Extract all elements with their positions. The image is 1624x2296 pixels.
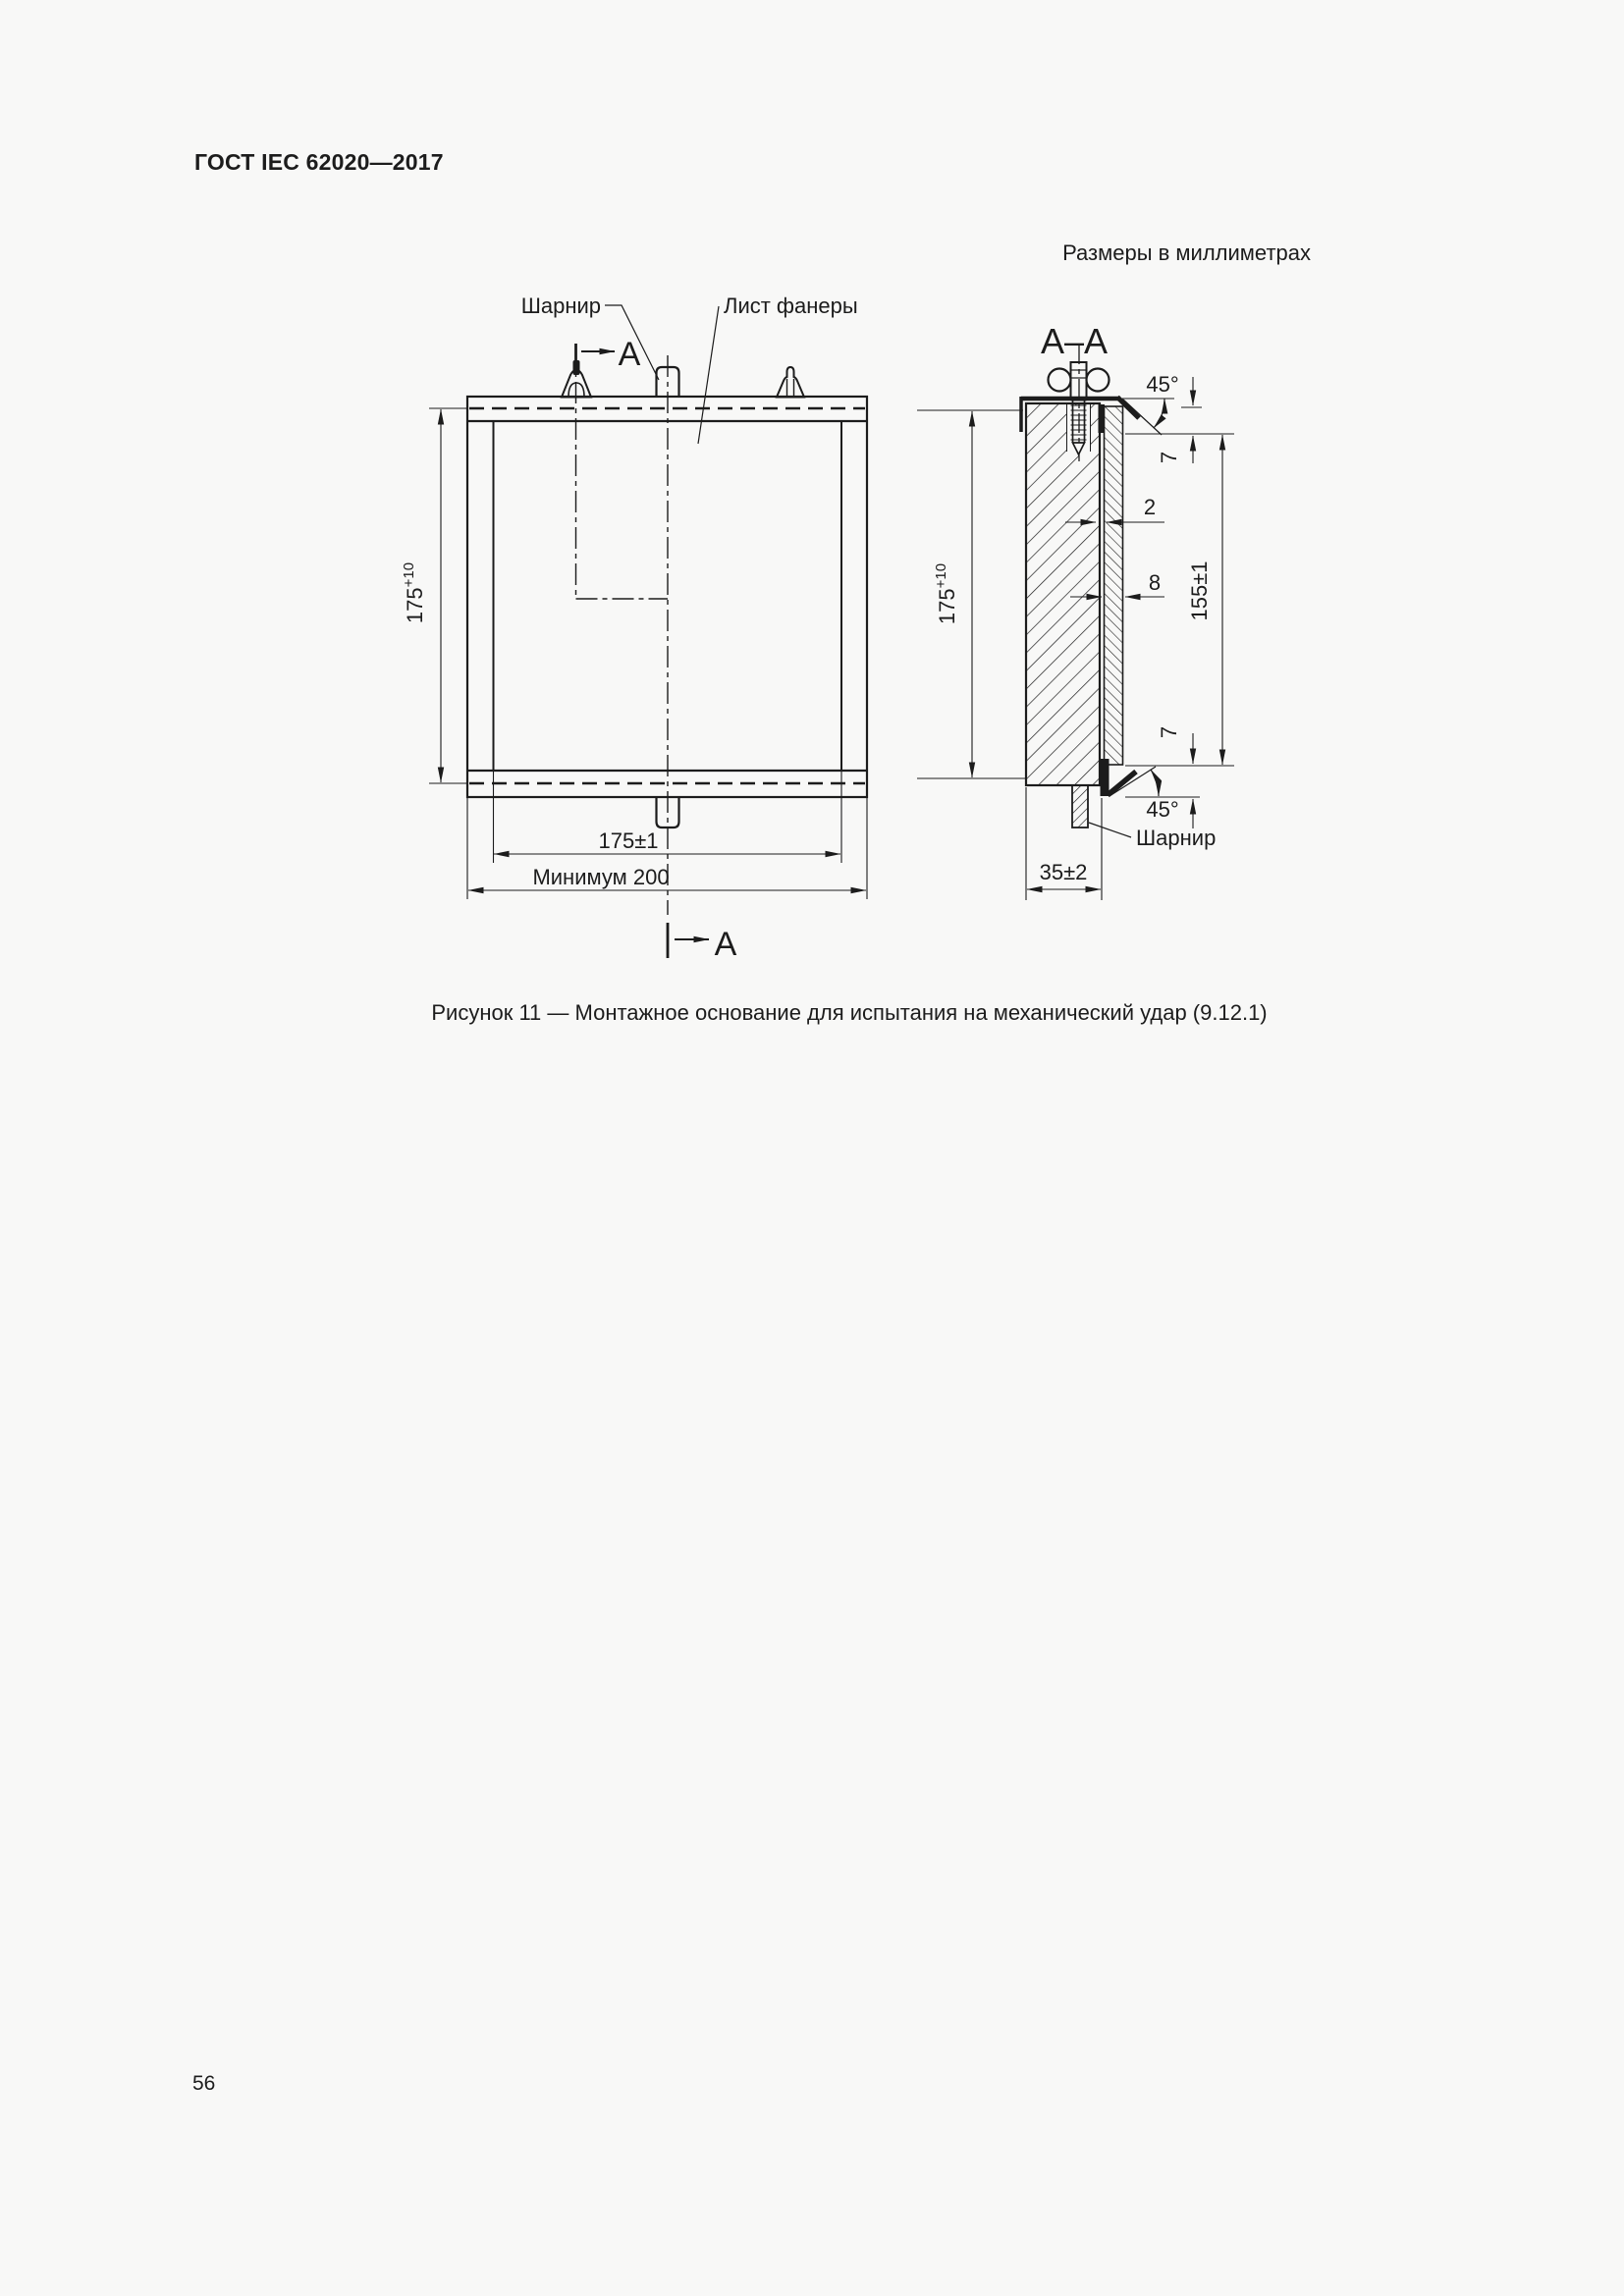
document-page: ГОСТ IEC 62020—2017 Размеры в миллиметра…	[0, 0, 1624, 2296]
figure-drawing: A A Шарнир Лист фанеры 175+10 175±1	[0, 0, 1624, 2296]
hinge-label: Шарнир	[521, 294, 601, 318]
angle-bottom: 45°	[1146, 797, 1178, 822]
angle-top: 45°	[1146, 372, 1178, 397]
hinge-label-section: Шарнир	[1136, 826, 1216, 850]
thickness-dim: 8	[1149, 570, 1161, 595]
min-width-dim: Минимум 200	[532, 865, 669, 889]
bottom-tab	[1108, 772, 1136, 795]
mounting-block	[1026, 403, 1100, 785]
plywood-label: Лист фанеры	[724, 294, 858, 318]
hinge-peg-section: Шарнир	[1072, 785, 1216, 850]
figure-caption: Рисунок 11 — Монтажное основание для исп…	[378, 1000, 1321, 1026]
offset-top-dim: 7	[1157, 452, 1181, 463]
base-width-dim: 35±2	[1040, 860, 1088, 884]
section-height-dim: 175+10	[933, 563, 959, 624]
section-letter-top: A	[619, 336, 641, 373]
offset-bottom-dim: 7	[1157, 726, 1181, 738]
gap-dim: 2	[1144, 495, 1156, 519]
section-letter-bottom: A	[715, 926, 737, 963]
section-view: A–A	[917, 321, 1234, 900]
sheet-height-dim: 155±1	[1187, 561, 1212, 620]
front-view: A A Шарнир Лист фанеры 175+10 175±1	[401, 294, 867, 963]
front-dimensions: 175+10 175±1 Минимум 200	[401, 408, 867, 899]
front-height-dim: 175+10	[401, 562, 427, 623]
page-number: 56	[192, 2072, 215, 2096]
section-title: A–A	[1041, 321, 1108, 361]
sheet-width-dim: 175±1	[598, 828, 658, 853]
hinge-wing-nut-right	[777, 367, 804, 398]
plywood-strip	[1099, 404, 1123, 796]
